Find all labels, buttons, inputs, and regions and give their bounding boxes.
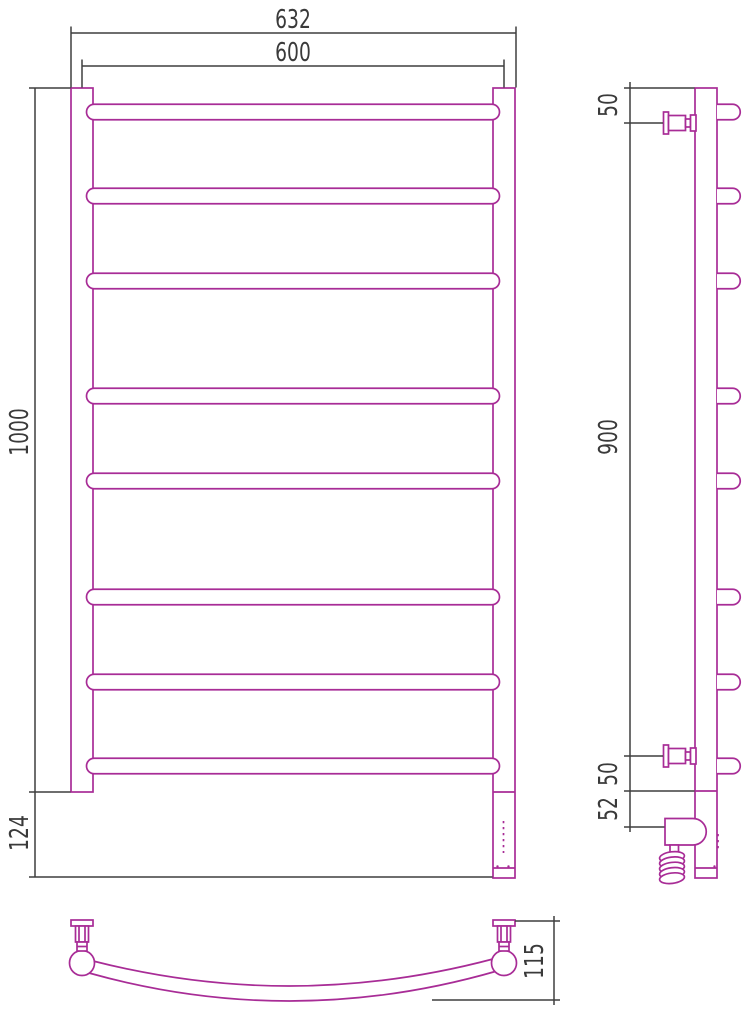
rung — [87, 388, 500, 404]
rung-bump — [717, 273, 740, 289]
rung — [87, 758, 500, 774]
dim-bottom-section-label: 124 — [5, 815, 35, 851]
dim-top-offset-label: 50 — [594, 93, 624, 117]
rung — [87, 589, 500, 605]
rung — [87, 674, 500, 690]
side-view — [659, 88, 740, 885]
front-view — [71, 88, 515, 878]
technical-drawing-page: 632 600 1000 124 — [0, 0, 750, 1013]
dim-depth-label: 115 — [520, 943, 550, 979]
dim-width-axes-label: 600 — [275, 38, 311, 68]
top-view — [70, 920, 517, 1001]
rung-bump — [717, 104, 740, 120]
towel-rail-drawing: 632 600 1000 124 — [0, 0, 750, 1013]
rung — [87, 104, 500, 120]
wall-bracket-icon — [493, 920, 515, 951]
rung-bump — [717, 188, 740, 204]
rung-bump — [717, 473, 740, 489]
front-rungs — [87, 104, 500, 774]
dim-width-overall-label: 632 — [275, 5, 311, 35]
rung-bump — [717, 674, 740, 690]
side-tube — [695, 88, 717, 878]
side-dimensions — [624, 82, 695, 832]
spiral-cable-icon — [659, 850, 685, 885]
dim-heater-offset-label: 52 — [594, 797, 624, 821]
side-rung-bumps — [717, 104, 740, 774]
left-post-section — [70, 951, 95, 976]
bottom-valve-icon — [664, 745, 697, 767]
rung-bump — [717, 388, 740, 404]
rung — [87, 273, 500, 289]
wall-bracket-icon — [71, 920, 93, 951]
rung — [87, 473, 500, 489]
front-dimensions — [29, 27, 516, 878]
right-post-section — [492, 951, 517, 976]
rung — [87, 188, 500, 204]
air-vent-valve-icon — [664, 112, 697, 134]
rung-bump — [717, 589, 740, 605]
dim-connection-span-label: 900 — [594, 419, 624, 455]
curved-rung-inner-arc — [93, 959, 493, 986]
dim-bottom-offset-label: 50 — [594, 762, 624, 786]
rung-bump — [717, 758, 740, 774]
dim-height-label: 1000 — [5, 408, 35, 456]
